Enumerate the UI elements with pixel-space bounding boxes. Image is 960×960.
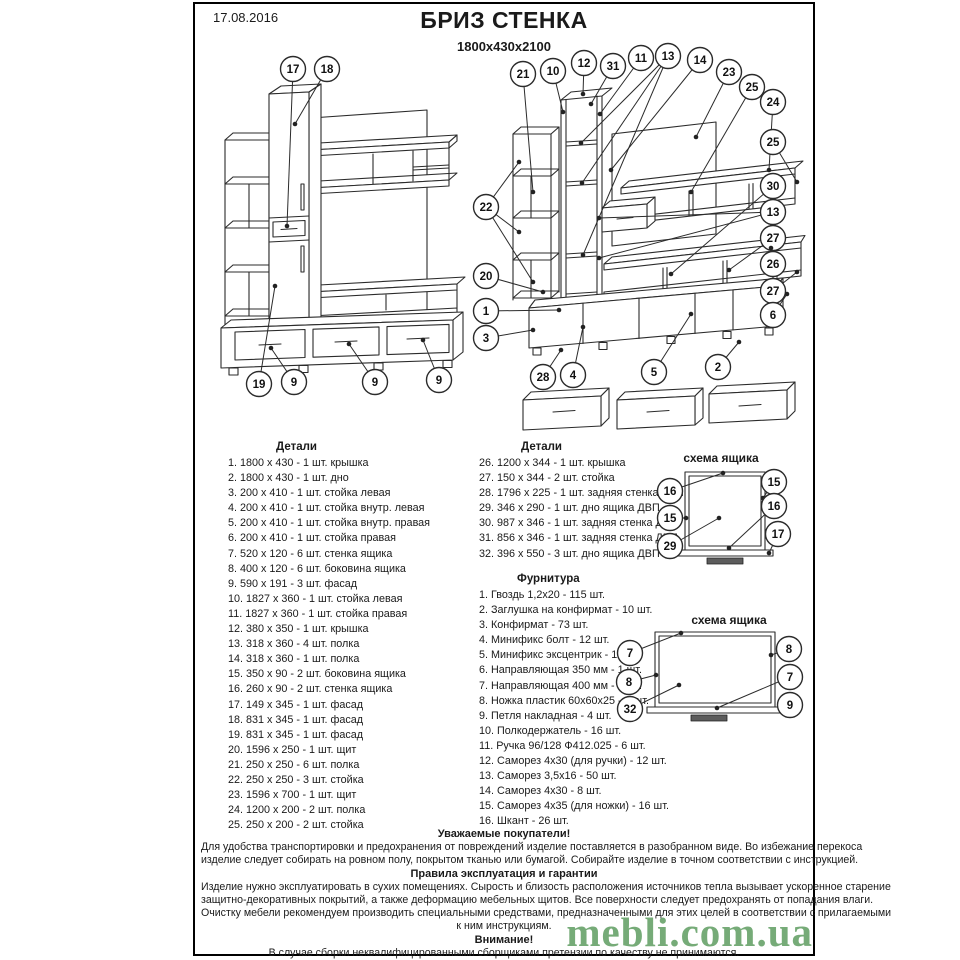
callout-number: 9 <box>436 375 442 387</box>
part-list-item: 6. 200 х 410 - 1 шт. стойка правая <box>228 531 430 546</box>
callout-target-dot <box>694 135 699 140</box>
part-list-item: 23. 1596 х 700 - 1 шт. щит <box>228 788 430 803</box>
callout-target-dot <box>589 102 594 107</box>
watermark: mebli.com.ua <box>566 912 813 953</box>
part-list-item: 4. 200 х 410 - 1 шт. стойка внутр. левая <box>228 501 430 516</box>
drawer-scheme-1-title: схема ящика <box>645 451 797 465</box>
callout-number: 6 <box>770 310 776 322</box>
callout-target-dot <box>727 546 732 551</box>
parts-list-left-items: 1. 1800 х 430 - 1 шт. крышка2. 1800 х 43… <box>228 456 430 833</box>
hardware-list-item: 2. Заглушка на конфирмат - 10 шт. <box>479 603 669 618</box>
part-list-item: 1. 1800 х 430 - 1 шт. крышка <box>228 456 430 471</box>
callout-number: 3 <box>483 333 489 345</box>
callout-number: 13 <box>767 207 780 219</box>
callout-target-dot <box>557 308 562 313</box>
callout-target-dot <box>727 268 732 273</box>
callout-target-dot <box>717 516 722 521</box>
callout-number: 30 <box>767 181 780 193</box>
part-list-item: 3. 200 х 410 - 1 шт. стойка левая <box>228 486 430 501</box>
callout-target-dot <box>785 292 790 297</box>
callout-number: 23 <box>723 67 736 79</box>
callout-number: 18 <box>321 64 334 76</box>
footer-line: Изделие нужно эксплуатировать в сухих по… <box>201 881 807 894</box>
callout-number: 27 <box>767 233 780 245</box>
callout-number: 9 <box>291 377 297 389</box>
callout-target-dot <box>581 253 586 258</box>
part-list-item: 8. 400 х 120 - 6 шт. боковина ящика <box>228 562 430 577</box>
part-list-item: 21. 250 х 250 - 6 шт. полка <box>228 758 430 773</box>
callout-target-dot <box>269 346 274 351</box>
callout-target-dot <box>737 340 742 345</box>
callout-number: 1 <box>483 306 490 318</box>
callout-target-dot <box>541 290 546 295</box>
part-list-item: 12. 380 х 350 - 1 шт. крышка <box>228 622 430 637</box>
drawer-scheme-2-title: схема ящика <box>653 613 805 627</box>
hardware-list-item: 12. Саморез 4х30 (для ручки) - 12 шт. <box>479 754 669 769</box>
callout-number: 15 <box>768 477 781 489</box>
callout-target-dot <box>767 168 772 173</box>
footer-line: Для удобства транспортировки и предохран… <box>201 841 807 854</box>
part-list-item: 20. 1596 х 250 - 1 шт. щит <box>228 743 430 758</box>
callout-number: 25 <box>767 137 780 149</box>
callout-number: 11 <box>635 53 648 65</box>
callout-target-dot <box>531 190 536 195</box>
callout-target-dot <box>517 160 522 165</box>
callout-number: 32 <box>624 704 637 716</box>
callout-number: 31 <box>607 61 620 73</box>
callout-target-dot <box>609 168 614 173</box>
callout-target-dot <box>273 284 278 289</box>
part-list-item: 15. 350 х 90 - 2 шт. боковина ящика <box>228 667 430 682</box>
callout-number: 16 <box>664 486 677 498</box>
callout-target-dot <box>689 312 694 317</box>
callout-number: 21 <box>517 69 530 81</box>
callout-target-dot <box>517 230 522 235</box>
callout-number: 10 <box>547 66 560 78</box>
callout-number: 17 <box>287 64 300 76</box>
footer-line: защитно-декоративных покрытий, а также д… <box>201 894 807 907</box>
callout-target-dot <box>581 325 586 330</box>
callout-number: 27 <box>767 286 780 298</box>
callout-number: 5 <box>651 367 658 379</box>
callout-number: 8 <box>626 677 633 689</box>
callout-number: 14 <box>694 55 707 67</box>
callout-number: 29 <box>664 541 677 553</box>
drawer-scheme-2-drawing: 7832879 <box>613 627 805 734</box>
callout-target-dot <box>597 216 602 221</box>
callout-target-dot <box>769 246 774 251</box>
callout-target-dot <box>669 272 674 277</box>
callout-target-dot <box>421 338 426 343</box>
callout-target-dot <box>689 190 694 195</box>
part-list-item: 7. 520 х 120 - 6 шт. стенка ящика <box>228 547 430 562</box>
callout-leader-line <box>523 74 533 192</box>
callout-target-dot <box>293 122 298 127</box>
callout-number: 9 <box>787 700 793 712</box>
page-title: БРИЗ СТЕНКА <box>195 7 813 34</box>
parts-list-left-header: Детали <box>276 438 430 456</box>
hardware-list-item: 1. Гвоздь 1,2х20 - 115 шт. <box>479 588 669 603</box>
callout-target-dot <box>769 653 774 658</box>
callout-number: 22 <box>480 202 493 214</box>
part-list-item: 14. 318 х 360 - 1 шт. полка <box>228 652 430 667</box>
callout-target-dot <box>579 141 584 146</box>
callout-target-dot <box>684 516 689 521</box>
callout-target-dot <box>347 342 352 347</box>
callout-number: 25 <box>746 82 759 94</box>
part-list-item: 13. 318 х 360 - 4 шт. полка <box>228 637 430 652</box>
callout-number: 9 <box>372 377 378 389</box>
hardware-list-item: 13. Саморез 3,5х16 - 50 шт. <box>479 769 669 784</box>
drawer-scheme-1-drawing: 161515162917 <box>645 468 797 588</box>
callout-number: 7 <box>787 672 793 684</box>
callout-target-dot <box>285 224 290 229</box>
hardware-list-item: 11. Ручка 96/128 Ф412.025 - 6 шт. <box>479 739 669 754</box>
part-list-item: 17. 149 х 345 - 1 шт. фасад <box>228 698 430 713</box>
instruction-sheet: 17.08.2016 БРИЗ СТЕНКА 1800x430x2100 <box>193 2 815 956</box>
assembled-view-drawing: 171819999 <box>211 54 475 404</box>
callout-target-dot <box>597 256 602 261</box>
callout-number: 26 <box>767 259 780 271</box>
part-list-item: 22. 250 х 250 - 3 шт. стойка <box>228 773 430 788</box>
part-list-item: 5. 200 х 410 - 1 шт. стойка внутр. права… <box>228 516 430 531</box>
footer-line: изделие следует собирать на ровном полу,… <box>201 854 807 867</box>
hardware-list-item: 15. Саморез 4х35 (для ножки) - 16 шт. <box>479 799 669 814</box>
callout-target-dot <box>767 551 772 556</box>
callout-number: 28 <box>537 372 550 384</box>
part-list-item: 11. 1827 х 360 - 1 шт. стойка правая <box>228 607 430 622</box>
part-list-item: 19. 831 х 345 - 1 шт. фасад <box>228 728 430 743</box>
callout-number: 4 <box>570 370 577 382</box>
part-list-item: 9. 590 х 191 - 3 шт. фасад <box>228 577 430 592</box>
callout-target-dot <box>561 110 566 115</box>
callout-target-dot <box>654 673 659 678</box>
hardware-list-item: 14. Саморез 4х30 - 8 шт. <box>479 784 669 799</box>
callout-number: 19 <box>253 379 266 391</box>
callout-target-dot <box>598 112 603 117</box>
callout-number: 24 <box>767 97 780 109</box>
drawer-scheme-1-art <box>677 472 773 564</box>
callout-number: 12 <box>578 58 591 70</box>
callout-number: 8 <box>786 644 793 656</box>
part-list-item: 10. 1827 х 360 - 1 шт. стойка левая <box>228 592 430 607</box>
callout-number: 17 <box>772 529 785 541</box>
callout-target-dot <box>580 181 585 186</box>
part-list-item: 2. 1800 х 430 - 1 шт. дно <box>228 471 430 486</box>
callout-target-dot <box>531 328 536 333</box>
part-list-item: 18. 831 х 345 - 1 шт. фасад <box>228 713 430 728</box>
callout-number: 16 <box>768 501 781 513</box>
callout-number: 20 <box>480 271 493 283</box>
callout-target-dot <box>677 683 682 688</box>
exploded-view-drawing: 2110123111131423252425301327262762220132… <box>471 42 808 437</box>
callout-target-dot <box>559 348 564 353</box>
part-list-item: 24. 1200 х 200 - 2 шт. полка <box>228 803 430 818</box>
part-list-item: 16. 260 х 90 - 2 шт. стенка ящика <box>228 682 430 697</box>
callout-target-dot <box>679 631 684 636</box>
footer-line: Правила эксплуатация и гарантии <box>201 868 807 881</box>
parts-list-left: Детали 1. 1800 х 430 - 1 шт. крышка2. 18… <box>228 438 430 833</box>
callout-target-dot <box>531 280 536 285</box>
callout-number: 7 <box>627 648 633 660</box>
callout-target-dot <box>581 92 586 97</box>
callout-target-dot <box>721 471 726 476</box>
callout-target-dot <box>715 706 720 711</box>
callout-number: 2 <box>715 362 721 374</box>
callout-number: 15 <box>664 513 677 525</box>
footer-line: Уважаемые покупатели! <box>201 828 807 841</box>
callout-target-dot <box>795 270 800 275</box>
callout-number: 13 <box>662 51 675 63</box>
callout-target-dot <box>795 180 800 185</box>
furniture-line-art-assembled <box>221 84 465 375</box>
